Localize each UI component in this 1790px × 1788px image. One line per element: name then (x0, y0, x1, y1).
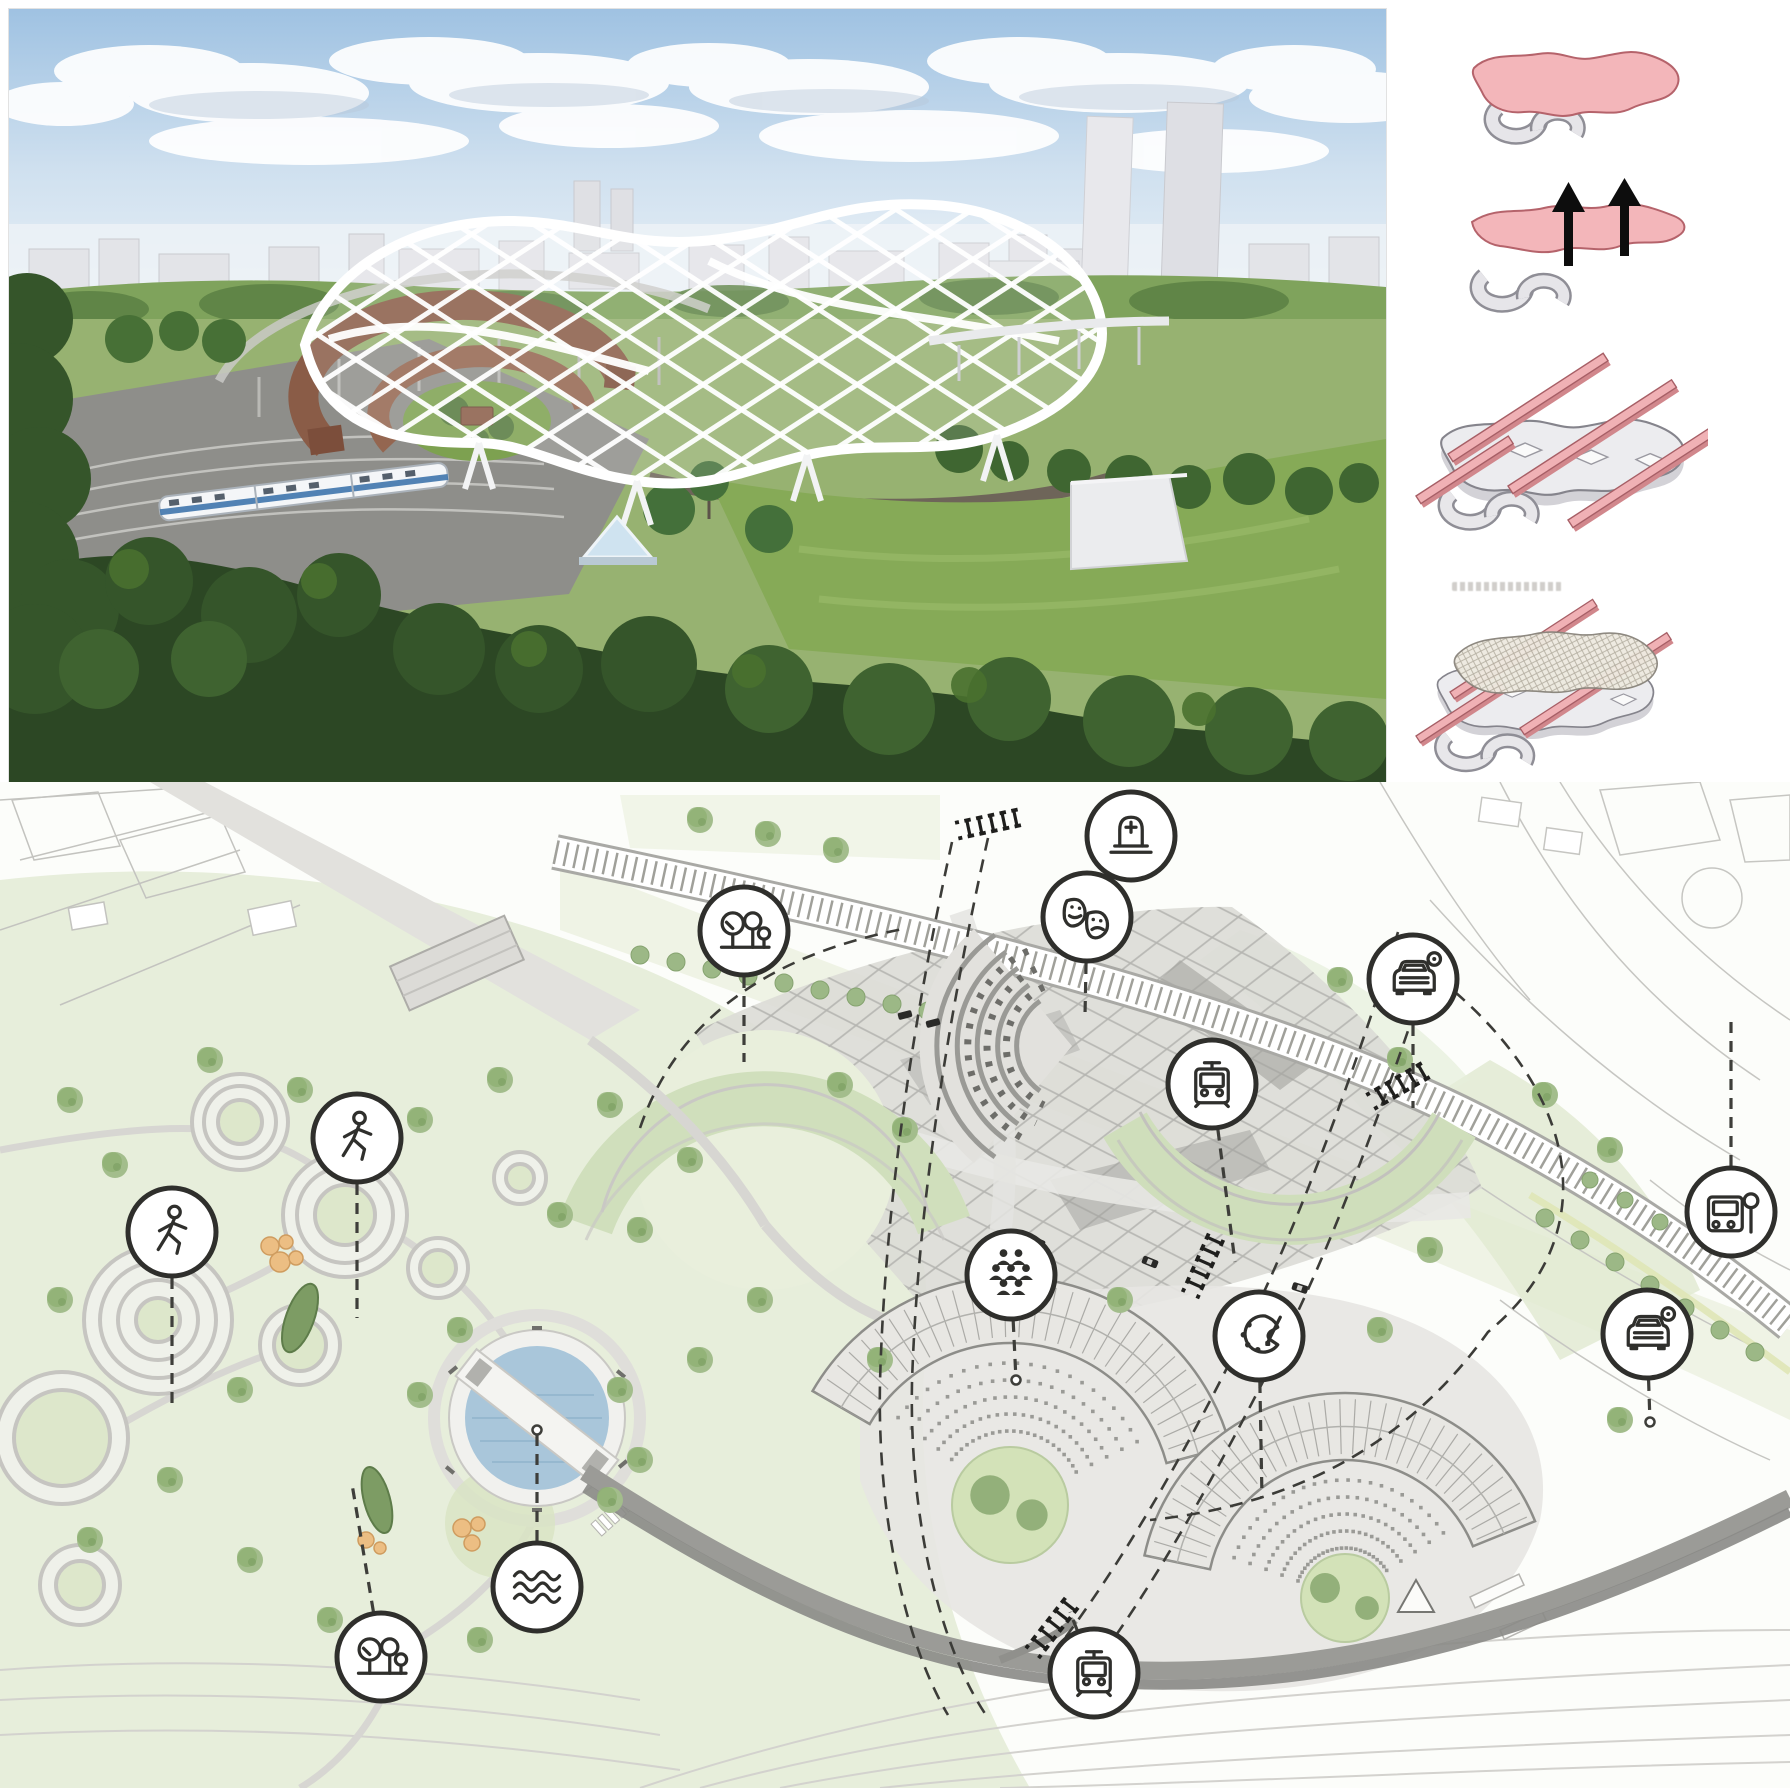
presentation-board (0, 0, 1790, 1788)
icon-circle (1168, 1040, 1256, 1128)
pink-ribbon-mass (1473, 52, 1679, 116)
icon-circle (1687, 1168, 1775, 1256)
icon-circle (1087, 792, 1175, 880)
aerial-render-svg (9, 9, 1386, 783)
icon-circle (1050, 1629, 1138, 1717)
concept-step-2-lift-figure (1448, 170, 1698, 318)
mound (192, 1074, 288, 1170)
leader-line (1085, 963, 1086, 1015)
illegible-caption (1452, 582, 1562, 591)
mesh-canopy-blob (1454, 632, 1657, 693)
icon-circle (128, 1188, 216, 1276)
icon-circle (700, 887, 788, 975)
icon-circle (337, 1613, 425, 1701)
concept-step-3-plate-and-link-bars (1408, 336, 1708, 568)
mound (494, 1152, 546, 1204)
site-plan-svg (0, 782, 1790, 1788)
icon-circle (1215, 1292, 1303, 1380)
mound (408, 1238, 468, 1298)
site-plan (0, 782, 1790, 1788)
mound (40, 1545, 120, 1625)
icon-circle (967, 1231, 1055, 1319)
cemetery-icon (1087, 792, 1175, 880)
aerial-render (8, 8, 1387, 784)
icon-circle (313, 1094, 401, 1182)
concept-step-4-mesh-canopy (1402, 596, 1712, 784)
right-white-building (1071, 475, 1187, 569)
grey-roundhouse-arcs (1442, 736, 1528, 764)
concept-step-1-massing-figure (1460, 28, 1690, 146)
grey-roundhouse-arcs (1478, 276, 1564, 304)
mound (0, 1372, 128, 1504)
